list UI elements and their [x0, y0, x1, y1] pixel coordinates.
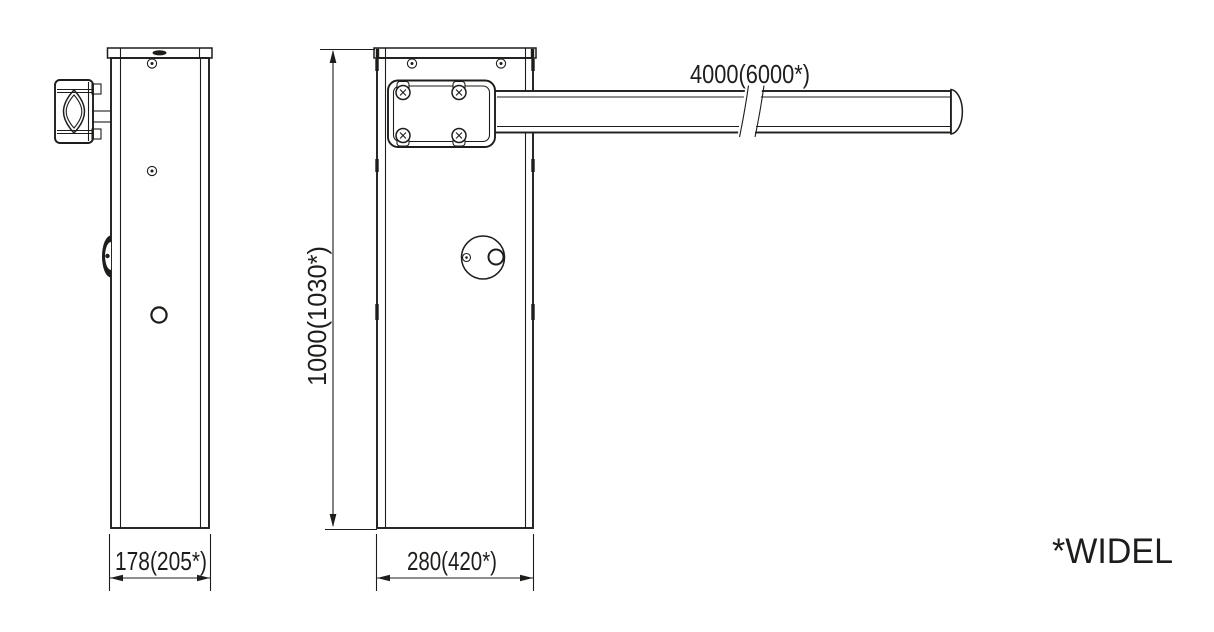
- bolt: [452, 86, 466, 100]
- bolt: [396, 86, 410, 100]
- screw: [496, 59, 505, 68]
- height-dimension: 1000(1030*): [302, 50, 377, 530]
- front-width-label: 280(420*): [407, 546, 497, 576]
- bolt: [452, 129, 466, 143]
- cap-slot: [153, 50, 167, 55]
- bolt: [396, 129, 410, 143]
- arm-length-dimension: 4000(6000*): [690, 59, 810, 89]
- screw: [147, 166, 156, 175]
- height-dimension-label: 1000(1030*): [302, 246, 332, 386]
- barrier-arm: [494, 84, 962, 139]
- screw: [407, 59, 416, 68]
- side-width-dimension: 178(205*): [110, 534, 211, 591]
- drawing-canvas: 1000(1030*) 178(205*) 280(420*) 4000(600…: [0, 0, 1214, 632]
- side-view: [55, 48, 212, 528]
- hinge-pin: [102, 236, 111, 278]
- arm-length-label: 4000(6000*): [690, 59, 810, 89]
- side-width-label: 178(205*): [115, 546, 207, 576]
- side-cabinet-body: [111, 58, 209, 528]
- release-lock: [462, 236, 505, 279]
- arm-end-cap: [951, 90, 962, 135]
- front-top-cap: [374, 48, 536, 58]
- arrow-left: [377, 575, 390, 582]
- arrow-down: [330, 514, 337, 527]
- arrow-right: [520, 575, 533, 582]
- arm-mounting-plate: [388, 81, 495, 148]
- screw: [147, 59, 156, 68]
- side-top-cap: [108, 48, 213, 58]
- arrow-up: [330, 50, 337, 63]
- front-width-dimension: 280(420*): [377, 534, 534, 591]
- model-note: *WIDEL: [1052, 532, 1173, 571]
- arm-mount-bracket: [55, 80, 111, 143]
- lock-hole: [151, 307, 166, 322]
